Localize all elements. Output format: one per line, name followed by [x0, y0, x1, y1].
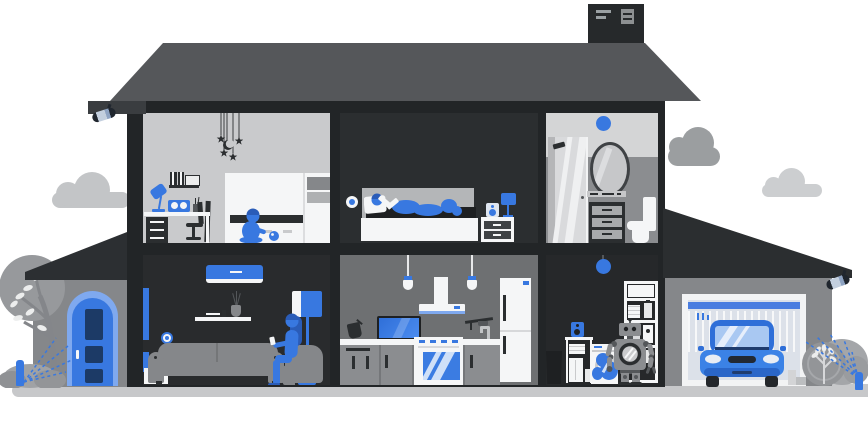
- side-shelf-towels: [569, 344, 585, 354]
- robot-foot-right: [630, 382, 642, 385]
- person-in-bed: [364, 190, 474, 220]
- child-playing: [236, 205, 281, 243]
- laundry-speaker-woofer: [574, 329, 580, 335]
- shelf-vase: [231, 305, 241, 317]
- faucet-body: [487, 328, 490, 339]
- oven-window: [420, 349, 463, 383]
- stars-moon-mobile: [213, 113, 243, 161]
- robot-claw-2: [652, 367, 656, 375]
- drawer-handle-3: [150, 237, 164, 239]
- bathroom: [546, 113, 658, 243]
- left-sprinkler-spray: [20, 330, 82, 386]
- fridge-handle-lower: [503, 336, 506, 354]
- cabinet-door-handle-1: [352, 356, 355, 369]
- cabinet-divider-3: [463, 345, 465, 385]
- shower-glass-edge: [586, 137, 588, 243]
- nightstand-handle-2: [493, 234, 501, 236]
- bedroom-wall-sensor: [346, 196, 358, 208]
- pendant-cord-1: [407, 255, 409, 276]
- splash-blob-3: [592, 367, 603, 380]
- drawer-handle-2: [150, 229, 164, 231]
- toilet-seat: [627, 221, 655, 230]
- bunk-drawer-handle-2: [283, 230, 292, 233]
- car-mirror-left: [698, 346, 704, 351]
- woman-foot: [268, 383, 280, 385]
- garage-roof: [663, 208, 857, 280]
- mirror-streak: [592, 147, 613, 190]
- vent-slat-2: [596, 16, 606, 19]
- vent-panel-line-1: [623, 13, 632, 15]
- robot-knee-right: [634, 375, 638, 379]
- towels-top: [628, 285, 654, 297]
- bumper-vent: [732, 371, 752, 374]
- oval-mirror: [590, 142, 630, 196]
- garage-door-stripe: [688, 302, 800, 309]
- bedroom-wall-sensor-core: [349, 199, 355, 205]
- toy-ball: [269, 231, 279, 241]
- cloud-right-light-puff-small: [765, 177, 782, 194]
- speaker-woofer: [489, 209, 496, 216]
- car-mirror-right: [780, 346, 786, 351]
- vanity-drawer-handle-2: [602, 221, 612, 223]
- vent-slat-1: [596, 10, 611, 13]
- shelf-books: [170, 172, 184, 185]
- shower-cabin: [548, 137, 588, 243]
- side-shelf-leg-right: [590, 340, 592, 383]
- blue-car: [696, 316, 788, 388]
- car-wheel-left: [706, 376, 719, 387]
- sofa-button-left: [154, 356, 157, 359]
- side-shelf-bottle: [585, 369, 590, 382]
- phone: [269, 336, 276, 345]
- cabinet-door-handle-4: [470, 355, 473, 368]
- vanity-item-3: [617, 193, 621, 195]
- robot-chest-drum: [621, 345, 640, 364]
- smart-home-illustration: [0, 0, 868, 441]
- toilet-base: [632, 230, 649, 243]
- stove-knob-1: [419, 340, 425, 343]
- hood-stripe: [419, 311, 465, 314]
- chair-stem: [192, 227, 195, 237]
- robot-foot-left: [618, 382, 630, 385]
- woman-hair-front: [286, 314, 299, 321]
- faucet-drop-tube: [480, 328, 483, 333]
- vanity-drawer-1: [592, 206, 622, 215]
- kids-room: [143, 113, 330, 243]
- cloud-left-puff-small: [56, 182, 80, 206]
- towel-stack: [628, 305, 640, 318]
- woman-using-phone: [263, 308, 313, 385]
- laundry-speaker: [571, 322, 584, 337]
- nightstand-handle-1: [493, 224, 501, 226]
- robot-forearm-right: [647, 357, 654, 369]
- stove-knob-4: [452, 340, 458, 343]
- side-shelf-top: [565, 337, 593, 340]
- mobile-moon: [223, 140, 234, 150]
- kitchen: [340, 255, 538, 385]
- bedroom: [340, 113, 538, 243]
- right-sprinkler: [855, 372, 863, 390]
- car-headlight-right: [763, 355, 779, 364]
- car-headlight-left: [705, 355, 721, 364]
- sofa-cushion-gap: [216, 343, 218, 363]
- fridge-split-line: [500, 330, 531, 332]
- cabinet-door-handle-3: [385, 355, 388, 368]
- bunk-linen-top: [307, 177, 330, 190]
- pendant-shade-1: [403, 280, 413, 290]
- pendant-ball-lamp: [596, 259, 611, 274]
- cabinet-drawer-handle: [346, 348, 370, 351]
- bedroom-speaker: [486, 203, 499, 217]
- cabinet-door-handle-2: [366, 356, 369, 369]
- curtain-upper: [143, 288, 149, 340]
- vent-panel: [621, 9, 634, 24]
- person-feet: [452, 206, 462, 216]
- shelf-1: [624, 298, 658, 301]
- tv-screen: [379, 318, 419, 338]
- vanity-drawer-2: [592, 218, 622, 227]
- cloud-right-dark-puff-small: [669, 137, 689, 157]
- trash-bin: [546, 351, 562, 384]
- bunk-bed-divider: [303, 173, 305, 243]
- windshield-base: [715, 347, 769, 350]
- side-cabinet-door-line: [575, 360, 576, 380]
- person-legs: [413, 204, 443, 216]
- robot-knee-left: [623, 375, 627, 379]
- robot-head: [619, 323, 641, 336]
- fridge-display: [523, 281, 529, 285]
- washer-control: [594, 346, 602, 348]
- robot-eye-right: [632, 327, 636, 331]
- rooftop-vent: [588, 4, 644, 44]
- side-shelf-cabinet: [569, 358, 583, 382]
- bathroom-ceiling-sensor: [596, 116, 611, 131]
- ac-vent: [206, 279, 263, 283]
- woman-shin: [273, 360, 280, 385]
- bedside-lamp-shade: [501, 193, 516, 205]
- robot-hand-left: [607, 366, 613, 372]
- sofa-armrest-left: [148, 352, 164, 383]
- vanity-cabinet: [589, 202, 625, 243]
- pendant-cord-2: [471, 255, 473, 276]
- robot-eye-left: [624, 327, 628, 331]
- laundry-room: [546, 255, 658, 385]
- shelving-top: [624, 281, 658, 284]
- cabinet-divider-1: [379, 345, 381, 385]
- radio-speaker-left: [171, 202, 178, 209]
- left-sprinkler: [16, 360, 24, 386]
- radio-speaker-right: [180, 202, 187, 209]
- vanity-item-1: [590, 193, 598, 195]
- home-robot: [604, 318, 656, 385]
- vent-panel-line-2: [623, 18, 632, 20]
- desk-lamp-shade: [149, 183, 168, 201]
- child-hair: [247, 209, 260, 216]
- ac-display: [230, 271, 242, 273]
- stove-knob-2: [430, 340, 436, 343]
- right-sprinkler-spray: [800, 330, 862, 382]
- side-shelf-leg-left: [566, 340, 568, 383]
- hood-label: [454, 306, 460, 309]
- speaker-tweeter: [491, 205, 494, 208]
- hanging-utensil: [470, 322, 472, 330]
- robot-claw-1: [646, 367, 651, 375]
- fridge-handle-upper: [503, 295, 506, 321]
- oven-handle: [418, 346, 459, 348]
- wall-shelf: [169, 185, 199, 188]
- sofa-foot-left: [156, 381, 162, 385]
- robot-neck: [627, 336, 633, 339]
- cloud-right-light-puff: [778, 168, 805, 195]
- robot-antenna-tip: [628, 318, 632, 321]
- hood-duct: [434, 277, 448, 304]
- vanity-drawer-3: [592, 230, 622, 239]
- living-room: [143, 255, 330, 385]
- bedside-lamp-base: [503, 215, 513, 217]
- chair-base: [186, 237, 201, 240]
- vanity-drawer-handle-3: [602, 233, 612, 235]
- laundry-speaker-tweeter: [576, 324, 579, 327]
- main-roof: [104, 43, 704, 101]
- bed-base: [361, 218, 478, 241]
- living-sensor-core: [165, 336, 169, 340]
- fridge: [500, 278, 531, 382]
- stove-knob-3: [441, 340, 447, 343]
- kettle: [347, 322, 363, 339]
- living-shelf: [195, 317, 251, 321]
- shelf-bottle: [222, 310, 226, 317]
- bunk-linen-bottom: [307, 192, 330, 203]
- vanity-item-2: [602, 193, 614, 195]
- pendant-shade-2: [467, 280, 477, 290]
- tv-glare: [390, 318, 412, 338]
- car-grille: [728, 356, 756, 363]
- shower-door-handle: [581, 196, 584, 199]
- car-wheel-right: [765, 376, 778, 387]
- desk-top: [144, 212, 210, 216]
- stove: [414, 337, 463, 385]
- drawer-handle-1: [150, 221, 164, 223]
- vanity-drawer-handle-1: [602, 209, 612, 211]
- air-conditioner: [206, 265, 263, 282]
- desk-leg: [206, 216, 209, 243]
- toy-ball-highlight: [271, 233, 274, 236]
- detergent-bottle-1: [644, 303, 652, 318]
